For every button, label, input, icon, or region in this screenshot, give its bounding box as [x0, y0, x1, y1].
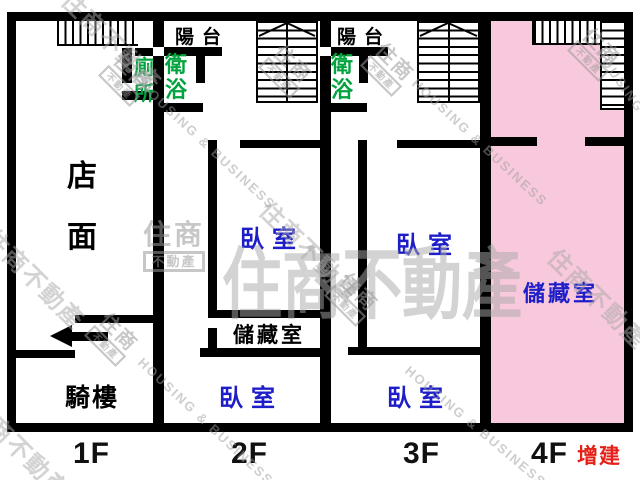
- wall-storage-bottom-2f: [200, 348, 320, 357]
- room-label-storage-4f: 儲藏室: [523, 276, 598, 308]
- room-label-toilet: 廁所: [134, 55, 156, 107]
- watermark-brand-logo: 住商 不動產: [324, 269, 382, 327]
- wall-outer-top: [7, 12, 633, 21]
- room-label-bedroom-2f: 臥室: [240, 219, 304, 254]
- entrance-arrow-head: [50, 325, 72, 347]
- stairs-4f-right-run: [600, 21, 624, 110]
- wall-4f-left: [491, 137, 537, 146]
- floor-plan: 店面 廁所 騎樓 陽台 衛浴 臥室 儲藏室 臥室 陽台 衛浴 臥室 臥室 儲藏室…: [0, 0, 640, 480]
- wall-bath-bottom-2f: [164, 103, 203, 112]
- wall-outer-bottom: [7, 423, 633, 432]
- room-label-balcony-3f: 陽台: [337, 22, 391, 49]
- wall-outer-right: [624, 12, 633, 432]
- stairs-1f: [57, 21, 138, 46]
- wall-storage-top-2f: [217, 310, 320, 318]
- annex-label: 增建: [577, 440, 621, 470]
- stairs-direction-chevron: [258, 21, 316, 37]
- wall-bath-right-2f: [196, 47, 205, 83]
- room-label-arcade: 騎樓: [65, 378, 119, 414]
- floor-label-1f: 1F: [73, 437, 110, 471]
- entrance-arrow-shaft: [70, 332, 108, 341]
- wall-bedroom-top-2f: [240, 140, 320, 148]
- wall-arcade-upper: [75, 315, 153, 323]
- wall-divider-2f-3f: [320, 21, 331, 47]
- wall-bedroom-left-2f: [208, 140, 217, 318]
- room-label-bedroom-low-3f: 臥室: [387, 378, 451, 413]
- room-label-bath-2f: 衛浴: [165, 52, 189, 102]
- stairs-3f: [417, 21, 480, 103]
- room-label-shop: 店面: [67, 146, 99, 268]
- stairs-4f-top-run: [532, 21, 600, 45]
- wall-divider-3f-4f: [480, 21, 491, 423]
- room-label-storage-2f: 儲藏室: [233, 319, 305, 349]
- floor-label-2f: 2F: [231, 437, 268, 471]
- wall-bath-bottom-3f: [331, 103, 367, 112]
- room-label-bath-3f: 衛浴: [331, 52, 355, 102]
- wall-toilet-left: [122, 48, 132, 83]
- wall-bath-right-3f: [359, 47, 368, 83]
- room-label-bedroom-3f: 臥室: [396, 225, 460, 260]
- room-label-balcony-2f: 陽台: [175, 22, 229, 49]
- floor-label-4f: 4F: [531, 437, 568, 471]
- wall-4f-right: [585, 137, 624, 146]
- floor-label-3f: 3F: [403, 437, 440, 471]
- wall-outer-left: [7, 12, 16, 432]
- stairs-2f: [256, 21, 318, 103]
- wall-bedroom-left-3f: [358, 140, 367, 347]
- wall-arcade-lower: [16, 350, 75, 358]
- wall-divider-1f-2f: [153, 56, 164, 423]
- wall-lower-3f: [348, 347, 480, 355]
- room-label-bedroom-low-2f: 臥室: [219, 378, 283, 413]
- wall-divider-2f-3f: [320, 56, 331, 423]
- stairs-direction-chevron: [419, 21, 478, 37]
- wall-divider-1f-2f: [153, 21, 164, 47]
- wall-bedroom-top-3f: [397, 140, 480, 148]
